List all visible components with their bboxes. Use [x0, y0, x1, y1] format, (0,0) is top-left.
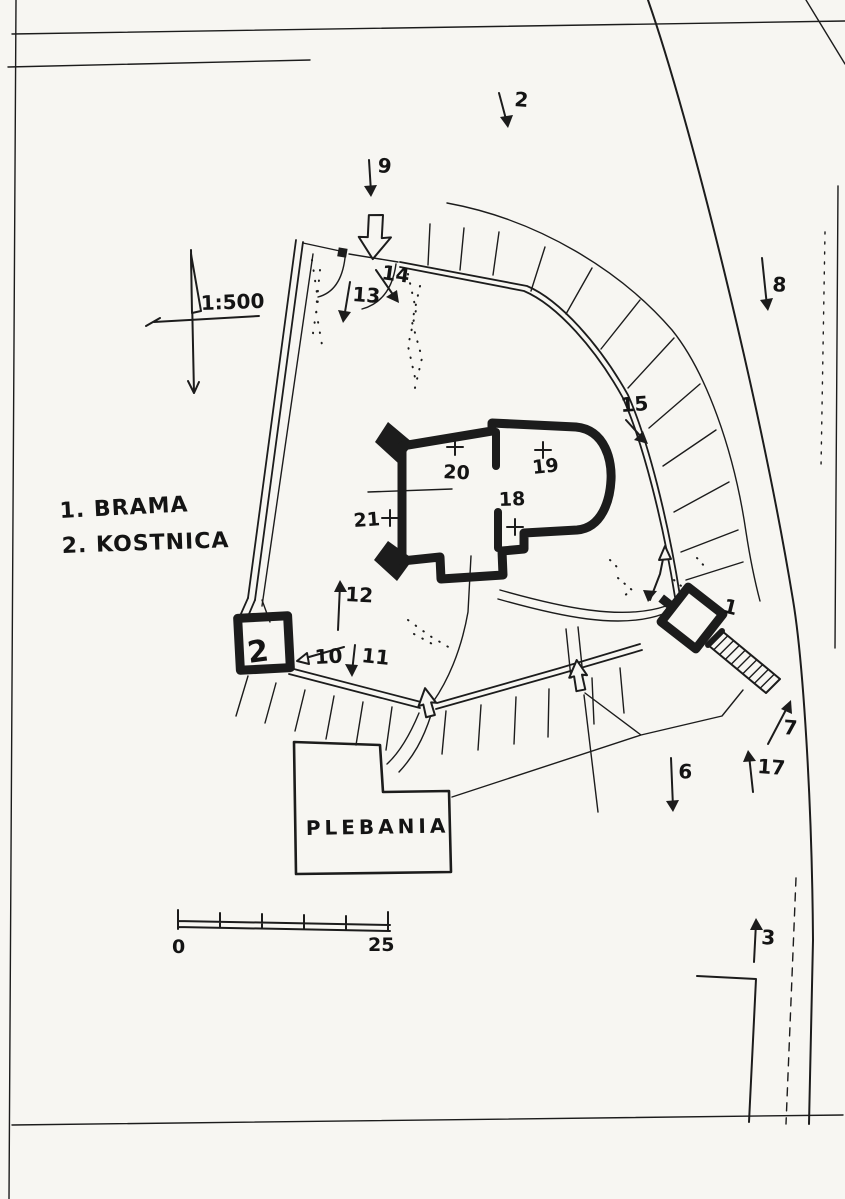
property-corner-fence [697, 976, 756, 1122]
arrow-6-label: 6 [678, 759, 693, 784]
page-border-lines [8, 0, 845, 1199]
east-slope [428, 203, 760, 601]
arrow-15-label: 15 [620, 391, 649, 417]
arrow-2: 2 [499, 87, 529, 128]
legend-item-brama: 1. BRAMA [59, 492, 189, 524]
arrow-9-label: 9 [376, 153, 392, 178]
arrow-10-label: 10 [314, 644, 343, 669]
site-plan-drawing: 1:500 1. BRAMA 2. KOSTNICA [0, 0, 845, 1199]
scale-bar-lines [178, 910, 390, 931]
gate-post [337, 247, 347, 257]
south-wall-left [289, 668, 421, 708]
arrow-11-label: 11 [360, 643, 390, 670]
arrow-14: 14 [376, 260, 411, 303]
arrow-11: 11 [345, 643, 391, 677]
plebania-outline [294, 742, 451, 874]
arrow-15: 15 [620, 391, 649, 444]
arrow-9: 9 [364, 153, 393, 197]
north-east-wall-outer [400, 267, 675, 597]
top-border-line-2 [8, 60, 310, 67]
path-to-plebania [387, 713, 431, 772]
south-wall-right [436, 644, 642, 709]
scale-bar: 0 25 [172, 910, 394, 958]
survey-cross-marks [382, 439, 551, 535]
stair-treads [714, 636, 774, 688]
kostnica-number: 2 [245, 633, 271, 671]
arrow-3-label: 3 [761, 925, 776, 950]
point-20-label: 20 [443, 461, 471, 484]
arrow-10: 10 [297, 644, 344, 669]
point-19-label: 19 [531, 454, 560, 479]
stipple-corner-nw [312, 260, 322, 345]
double-arrow [643, 546, 671, 602]
outer-boundary-curve [447, 203, 760, 601]
road-dashed-line [786, 878, 796, 1124]
arrow-17: 17 [743, 750, 786, 792]
kostnica: 2 [238, 600, 291, 671]
arrow-7: 7 [768, 700, 798, 744]
entrance-arrow [356, 212, 394, 261]
east-road-boundary [648, 0, 813, 1124]
fence-south-2 [452, 690, 743, 797]
right-dotted-line [821, 232, 825, 468]
walk-to-gate [498, 590, 666, 621]
point-18-label: 18 [498, 488, 525, 511]
scanned-site-plan-sheet: 1:500 1. BRAMA 2. KOSTNICA [0, 0, 845, 1199]
road-line [648, 0, 813, 1124]
stipple-apse-south [610, 560, 620, 570]
arrow-8: 8 [760, 258, 787, 311]
gate-number: 1 [721, 594, 740, 621]
legend: 1. BRAMA 2. KOSTNICA [59, 492, 230, 559]
gate-swing-arc-left [318, 258, 345, 297]
measure-line [368, 489, 452, 492]
north-arrow-crossbar [146, 316, 259, 326]
arrow-2-label: 2 [514, 87, 530, 112]
arrow-13-label: 13 [352, 282, 381, 308]
legend-item-kostnica: 2. KOSTNICA [61, 528, 229, 559]
gate-brama: 1 [658, 587, 780, 693]
plebania-label: PLEBANIA [306, 813, 450, 840]
plebania-building: PLEBANIA [294, 742, 451, 874]
scale-bar-end: 25 [368, 934, 394, 956]
top-gate-threshold-left [303, 243, 340, 251]
arrow-12: 12 [334, 580, 374, 630]
stipple-north-strip [408, 274, 422, 392]
left-border-line [9, 0, 16, 1199]
right-edge-line [835, 186, 838, 648]
arrow-17-label: 17 [757, 754, 786, 780]
bottom-border-line [12, 1115, 843, 1125]
arrow-8-label: 8 [772, 272, 788, 297]
church: 20 19 18 21 [353, 422, 611, 702]
point-21-label: 21 [353, 508, 381, 532]
arrow-3: 3 [750, 918, 776, 962]
corner-diagonal-line [806, 0, 845, 64]
north-arrow-flag [191, 254, 201, 313]
scale-bar-start: 0 [172, 936, 185, 958]
north-arrow [146, 250, 259, 393]
double-arrow-head-ne [659, 546, 671, 560]
stipple-south-yard [408, 620, 450, 648]
arrow-7-label: 7 [783, 715, 799, 740]
scale-ratio-label: 1:500 [200, 289, 264, 315]
arrow-13: 13 [338, 282, 381, 323]
arrow-14-label: 14 [380, 260, 411, 288]
arrow-6: 6 [666, 758, 693, 812]
arrow-12-label: 12 [345, 582, 374, 607]
top-border-line [12, 21, 845, 34]
